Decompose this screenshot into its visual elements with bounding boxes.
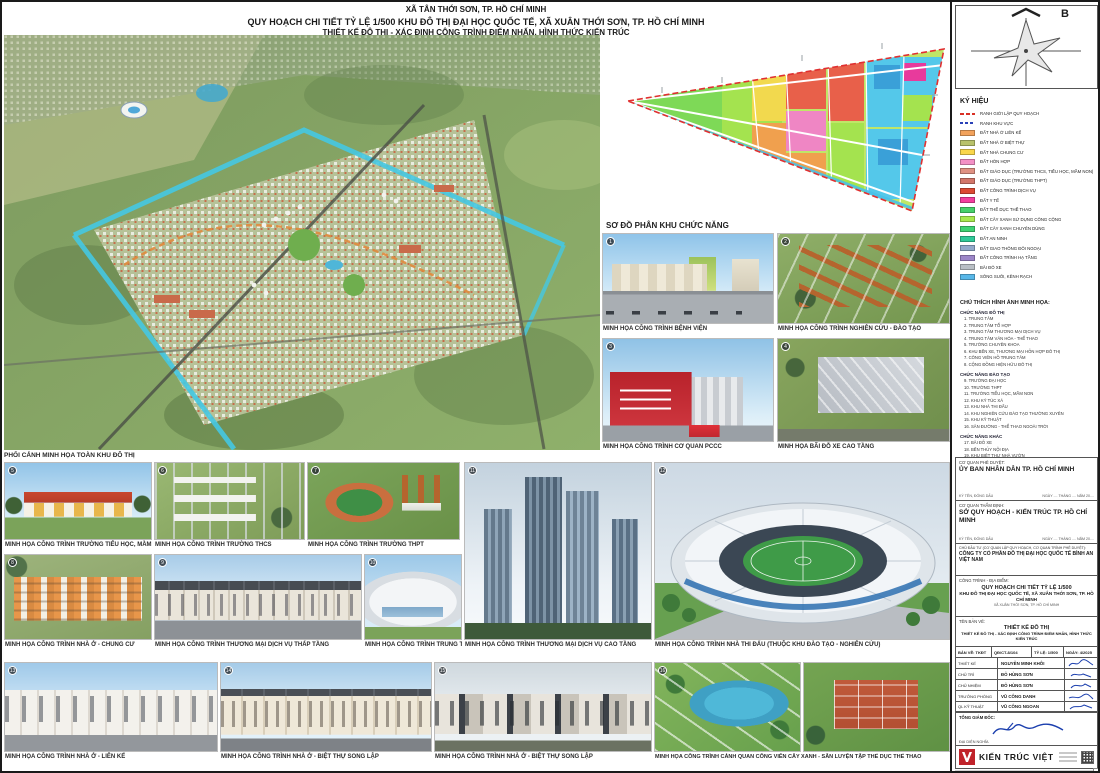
research-campus-photo: 2: [777, 233, 950, 324]
photo-number-badge: 5: [8, 466, 17, 475]
hospital-photo: 1: [602, 233, 774, 324]
firm-logo-icon: [959, 749, 975, 765]
legend-row: ĐẤT GIÁO DỤC (TRƯỜNG THPT): [960, 176, 1098, 186]
approval-block-sqhkt: CƠ QUAN THẨM ĐỊNH: SỞ QUY HOẠCH - KIẾN T…: [955, 500, 1098, 544]
legend-row: ĐẤT GIAO THÔNG ĐỐI NGOẠI: [960, 243, 1098, 253]
qr-code: [1081, 751, 1094, 764]
meta-row: BẢN VẼ: TKĐT QĐ/CT-8/104 TỶ LỆ: 1/500 NG…: [955, 646, 1098, 657]
primary-school-photo: 5: [4, 462, 152, 540]
legend-row: ĐẤT AN NINH: [960, 234, 1098, 244]
planning-board: XÃ TÂN THỚI SƠN, TP. HỒ CHÍ MINH QUY HOẠ…: [0, 0, 1100, 773]
photo-number-badge: 12: [658, 466, 667, 475]
legend-swatch: [960, 140, 975, 146]
legend-row: ĐẤT GIÁO DỤC (TRƯỜNG THCS, TIỂU HỌC, MẦM…: [960, 167, 1098, 177]
photo-card: 4 MINH HỌA BÃI ĐỖ XE CAO TẦNG: [777, 338, 950, 454]
photo-caption: MINH HỌA CÔNG TRÌNH THƯƠNG MẠI DỊCH VỤ T…: [154, 640, 362, 652]
legend-row: ĐẤT CÂY XANH SỬ DỤNG CÔNG CỘNG: [960, 215, 1098, 225]
photo-caption: MINH HỌA CÔNG TRÌNH NHÀ Ở - CHUNG CƯ: [4, 640, 152, 652]
photo-caption: MINH HỌA BÃI ĐỖ XE CAO TẦNG: [777, 442, 950, 454]
legend-row: ĐẤT NHÀ Ở BIỆT THỰ: [960, 138, 1098, 148]
legend-title: KÝ HIỆU: [960, 98, 1098, 105]
photo-card: 2 MINH HỌA CÔNG TRÌNH NGHIÊN CỨU - ĐÀO T…: [777, 233, 950, 336]
legend-row: ĐẤT NHÀ Ở LIÊN KẾ: [960, 128, 1098, 138]
signature-icon: [1065, 680, 1097, 690]
legend-swatch: [960, 264, 975, 270]
zoning-map-art: [602, 35, 950, 219]
secondary-school-photo: 6: [154, 462, 305, 540]
legend-row: ĐẤT CÔNG TRÌNH HẠ TẦNG: [960, 253, 1098, 263]
lowrise-commercial-photo: 9: [154, 554, 362, 640]
drawing-subname: THIẾT KẾ ĐÔ THỊ - XÁC ĐỊNH CÔNG TRÌNH ĐI…: [959, 631, 1094, 641]
townhouse-photo: 13: [4, 662, 218, 752]
photo-card: 5 MINH HỌA CÔNG TRÌNH TRƯỜNG TIỂU HỌC, M…: [4, 462, 152, 552]
photo-number-badge: 1: [606, 237, 615, 246]
photo-card: 16 MINH HỌA CÔNG TRÌNH CẢNH QUAN CÔNG VI…: [654, 662, 950, 764]
legend-swatch: [960, 216, 975, 222]
park-lake-photo: 16: [654, 662, 801, 752]
notes-group-title: CHỨC NĂNG ĐÔ THỊ: [960, 310, 1098, 315]
firm-contact-microtext: [1058, 752, 1077, 762]
photo-number-badge: 16: [658, 666, 667, 675]
legend-row: ĐẤT CÔNG TRÌNH DỊCH VỤ: [960, 186, 1098, 196]
legend-row: ĐẤT Y TẾ: [960, 195, 1098, 205]
firm-logo-row: KIẾN TRÚC VIỆT: [955, 745, 1098, 769]
villa-modern-photo: 15: [434, 662, 652, 752]
photo-card: 15 MINH HỌA CÔNG TRÌNH NHÀ Ở - BIỆT THỰ …: [434, 662, 652, 764]
signature-row: QL KỸ THUẬT VŨ CÔNG NGOAN: [955, 701, 1098, 712]
footer-microtext: [955, 770, 1098, 772]
photo-caption: MINH HỌA CÔNG TRÌNH CƠ QUAN PCCC: [602, 442, 774, 454]
signature-icon: [1065, 691, 1097, 701]
legend-row: ĐẤT CÂY XANH CHUYÊN DÙNG: [960, 224, 1098, 234]
project-block: CÔNG TRÌNH - ĐỊA ĐIỂM: QUY HOẠCH CHI TIẾ…: [955, 575, 1098, 617]
north-label: B: [1061, 8, 1069, 20]
photo-card: 14 MINH HỌA CÔNG TRÌNH NHÀ Ở - BIỆT THỰ …: [220, 662, 432, 764]
notes-group-items: 9. TRƯỜNG ĐẠI HỌC 10. TRƯỜNG THPT 11. TR…: [964, 378, 1098, 430]
signature-table: BẢN VẼ: TKĐT QĐ/CT-8/104 TỶ LỆ: 1/500 NG…: [955, 646, 1098, 712]
photo-caption: MINH HỌA CÔNG TRÌNH NHÀ Ở - BIỆT THỰ SON…: [220, 752, 432, 764]
master-plan-render: [4, 35, 600, 450]
photo-card: 9 MINH HỌA CÔNG TRÌNH THƯƠNG MẠI DỊCH VỤ…: [154, 554, 362, 652]
photo-number-badge: 3: [606, 342, 615, 351]
highrise-commercial-photo: 11: [464, 462, 652, 640]
area-line-icon: [960, 122, 975, 124]
photo-caption: MINH HỌA CÔNG TRÌNH TRƯỜNG TIỂU HỌC, MẦM…: [4, 540, 152, 552]
project-name: KHU ĐÔ THỊ ĐẠI HỌC QUỐC TẾ, XÃ XUÂN THỚI…: [959, 591, 1094, 602]
photo-number-badge: 14: [224, 666, 233, 675]
signature-icon: [1065, 658, 1097, 668]
photo-card: 7 MINH HỌA CÔNG TRÌNH TRƯỜNG THPT: [307, 462, 460, 552]
photo-number-badge: 7: [311, 466, 320, 475]
legend-swatch: [960, 159, 975, 165]
notes-group-title: CHỨC NĂNG KHÁC: [960, 434, 1098, 439]
legend-row: RANH KHU VỰC: [960, 119, 1098, 129]
board-header: XÃ TÂN THỚI SƠN, TP. HỒ CHÍ MINH QUY HOẠ…: [4, 5, 948, 39]
compass-box: B: [955, 5, 1098, 89]
photo-caption: MINH HỌA CÔNG TRÌNH BỆNH VIỆN: [602, 324, 774, 336]
high-school-photo: 7: [307, 462, 460, 540]
photo-caption: MINH HỌA CÔNG TRÌNH CẢNH QUAN CÔNG VIÊN …: [654, 752, 950, 764]
photo-card: 6 MINH HỌA CÔNG TRÌNH TRƯỜNG THCS: [154, 462, 305, 552]
legend-swatch: [960, 255, 975, 261]
photo-number-badge: 2: [781, 237, 790, 246]
signature-row: CHỦ NHIỆM ĐỖ HÙNG SƠN: [955, 679, 1098, 690]
stadium-art: [655, 463, 949, 639]
notes-title: CHÚ THÍCH HÌNH ẢNH MINH HỌA:: [960, 300, 1098, 306]
notes-group-items: 1. TRUNG TÂM 2. TRUNG TÂM TỔ HỢP 3. TRUN…: [964, 316, 1098, 368]
legend-swatch: [960, 197, 975, 203]
photo-caption: MINH HỌA CÔNG TRÌNH THƯƠNG MẠI DỊCH VỤ C…: [464, 640, 652, 652]
illustration-notes: CHÚ THÍCH HÌNH ẢNH MINH HỌA: CHỨC NĂNG Đ…: [960, 300, 1098, 466]
signature-row: CHỦ TRÌ ĐỖ HÙNG SƠN: [955, 668, 1098, 679]
photo-caption: MINH HỌA CÔNG TRÌNH TRUNG TÂM THƯƠNG MẠI: [364, 640, 462, 652]
legend-swatch: [960, 236, 975, 242]
sidebar: B KÝ HIỆU RANH GIỚI LẬP QUY HOẠCH RANH K…: [950, 2, 1100, 773]
photo-caption: MINH HỌA CÔNG TRÌNH NHÀ Ở - LIÊN KẾ: [4, 752, 218, 764]
signature-row: TRƯỞNG PHÒNG VŨ CÔNG DANH: [955, 690, 1098, 701]
master-plan-caption: PHỐI CẢNH MINH HỌA TOÀN KHU ĐÔ THỊ: [4, 450, 600, 462]
sheet-corner-box: [1093, 768, 1100, 773]
legend-swatch: [960, 149, 975, 155]
legend-swatch: [960, 226, 975, 232]
photo-number-badge: 10: [368, 558, 377, 567]
photo-number-badge: 15: [438, 666, 447, 675]
photo-card: 1 MINH HỌA CÔNG TRÌNH BỆNH VIỆN: [602, 233, 774, 336]
signature-icon: [1065, 669, 1097, 679]
drawing-name-block: TÊN BẢN VẼ: THIẾT KẾ ĐÔ THỊ THIẾT KẾ ĐÔ …: [955, 616, 1098, 647]
boundary-line-icon: [960, 113, 975, 115]
legend-row: ĐẤT THỂ DỤC THỂ THAO: [960, 205, 1098, 215]
north-arrow-icon: [956, 6, 1097, 88]
legend-swatch: [960, 188, 975, 194]
parking-garage-photo: 4: [777, 338, 950, 442]
project-address: XÃ XUÂN THỚI SƠN, TP. HỒ CHÍ MINH: [959, 603, 1094, 607]
legend-row: RANH GIỚI LẬP QUY HOẠCH: [960, 109, 1098, 119]
legend-swatch: [960, 130, 975, 136]
photo-card: 13 MINH HỌA CÔNG TRÌNH NHÀ Ở - LIÊN KẾ: [4, 662, 218, 764]
functional-diagram-title: SƠ ĐỒ PHÂN KHU CHỨC NĂNG: [606, 221, 729, 230]
zoning-map: [602, 35, 950, 219]
legend-row: ĐẤT HỖN HỢP: [960, 157, 1098, 167]
signature-row: THIẾT KẾ NGUYỄN MINH KHÔI: [955, 657, 1098, 668]
legend-swatch: [960, 207, 975, 213]
stadium-photo: 12: [654, 462, 950, 640]
director-name: ĐẠI DIỆN NGHĨA: [959, 740, 989, 744]
legend-swatch: [960, 274, 975, 280]
master-plan-card: PHỐI CẢNH MINH HỌA TOÀN KHU ĐÔ THỊ: [4, 35, 600, 462]
locality-title: XÃ TÂN THỚI SƠN, TP. HỒ CHÍ MINH: [4, 5, 948, 16]
legend-row: SÔNG SUỐI, KÊNH RẠCH: [960, 272, 1098, 282]
photo-caption: MINH HỌA CÔNG TRÌNH NGHIÊN CỨU - ĐÀO TẠO: [777, 324, 950, 336]
project-title: QUY HOẠCH CHI TIẾT TỶ LỆ 1/500 KHU ĐÔ TH…: [4, 16, 948, 28]
villa-classic-photo: 14: [220, 662, 432, 752]
notes-group-title: CHỨC NĂNG ĐÀO TẠO: [960, 372, 1098, 377]
signature-icon: [1065, 702, 1097, 711]
approval-block-investor: CHỦ ĐẦU TƯ (CƠ QUAN LẬP QUY HOẠCH, CƠ QU…: [955, 543, 1098, 576]
fire-station-photo: 3: [602, 338, 774, 442]
legend-swatch: [960, 178, 975, 184]
legend: KÝ HIỆU RANH GIỚI LẬP QUY HOẠCH RANH KHU…: [960, 98, 1098, 282]
director-signature-icon: [987, 720, 1067, 738]
shopping-center-photo: 10: [364, 554, 462, 640]
photo-card: 8 MINH HỌA CÔNG TRÌNH NHÀ Ở - CHUNG CƯ: [4, 554, 152, 652]
aerial-render-art: [4, 35, 600, 450]
legend-swatch: [960, 168, 975, 174]
sports-courts-photo: [803, 662, 950, 752]
photo-caption: MINH HỌA CÔNG TRÌNH TRƯỜNG THPT: [307, 540, 460, 552]
legend-row: BÃI ĐỖ XE: [960, 263, 1098, 273]
photo-card: 11 MINH HỌA CÔNG TRÌNH THƯƠNG MẠI DỊCH V…: [464, 462, 652, 652]
photo-number-badge: 9: [158, 558, 167, 567]
photo-number-badge: 11: [468, 466, 477, 475]
photo-number-badge: 8: [8, 558, 17, 567]
director-block: TỔNG GIÁM ĐỐC: ĐẠI DIỆN NGHĨA: [955, 712, 1098, 746]
apartment-photo: 8: [4, 554, 152, 640]
photo-caption: MINH HỌA CÔNG TRÌNH NHÀ Ở - BIỆT THỰ SON…: [434, 752, 652, 764]
photo-caption: MINH HỌA CÔNG TRÌNH TRƯỜNG THCS: [154, 540, 305, 552]
approval-block-ubnd: CƠ QUAN PHÊ DUYỆT: ỦY BAN NHÂN DÂN TP. H…: [955, 457, 1098, 501]
photo-number-badge: 6: [158, 466, 167, 475]
photo-card: 3 MINH HỌA CÔNG TRÌNH CƠ QUAN PCCC: [602, 338, 774, 454]
photo-number-badge: 13: [8, 666, 17, 675]
photo-card: 10 MINH HỌA CÔNG TRÌNH TRUNG TÂM THƯƠNG …: [364, 554, 462, 652]
legend-row: ĐẤT NHÀ CHUNG CƯ: [960, 147, 1098, 157]
legend-swatch: [960, 245, 975, 251]
photo-number-badge: 4: [781, 342, 790, 351]
photo-card: 12: [654, 462, 950, 652]
firm-name: KIẾN TRÚC VIỆT: [979, 752, 1054, 762]
photo-caption: MINH HỌA CÔNG TRÌNH NHÀ THI ĐẤU (THUỘC K…: [654, 640, 950, 652]
